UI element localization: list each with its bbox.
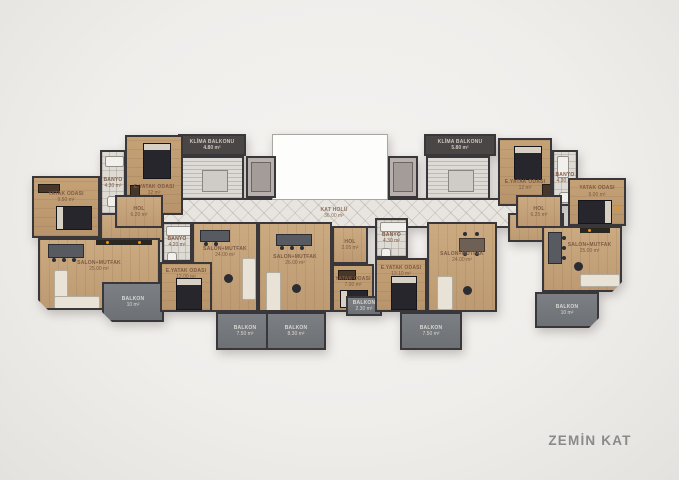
bed-icon [143,143,171,179]
room-klima-balkonu-left: KLİMA BALKONU4.80 m² [178,134,246,156]
floor-plan: KAT HOLÜ36.00 m² KLİMA BALKONU4.80 m² KL… [30,118,650,376]
room-label: BALKON [268,325,324,331]
balcony-left: BALKON10 m² [102,282,164,322]
coffee-table-icon [224,274,233,283]
room-hol-left: HOL6.20 m² [115,195,163,228]
stool-icon [62,258,66,262]
room-label: BALKON [402,325,460,331]
accent-icon [588,229,591,232]
room-label: BANYO [164,236,190,242]
balcony-unit4: BALKON7.50 m² [400,312,462,350]
bed-icon [176,278,202,310]
balcony-center: BALKON8.30 m² [266,312,326,350]
bed-icon [578,200,612,224]
room-label: KLİMA BALKONU [426,139,494,145]
room-label: BALKON [537,304,597,310]
room-label: HOL [334,239,366,245]
room-label: HOL [518,205,560,211]
room-eyatak-unit2: E.YATAK ODASI12.00 m² [160,262,212,312]
room-area: 2.05 m² [334,245,366,251]
stool-icon [290,246,294,250]
room-label: KAT HOLÜ [152,207,516,213]
stool-icon [72,258,76,262]
room-area: 4.20 m² [164,242,190,248]
room-salon-right: SALON+MUTFAK25.00 m² [542,226,622,292]
stool-icon [300,246,304,250]
room-salon-center: SALON+MUTFAK26.00 m² [258,222,332,312]
room-yatak-right: YATAK ODASI9.00 m² [568,178,626,226]
room-label: SALON+MUTFAK [559,242,620,248]
room-hol-center: HOL2.05 m² [332,226,368,264]
chair-icon [463,232,467,236]
stairwell-left [180,156,244,200]
room-label: YATAK ODASI [570,185,624,191]
stool-icon [562,256,566,260]
bathtub-icon [557,156,569,178]
kitchen-island-icon [48,244,84,258]
toilet-icon [167,252,177,262]
room-area: 6.25 m² [518,212,560,218]
room-area: 10 m² [537,310,597,316]
bed-icon [56,206,92,230]
stool-icon [204,242,208,246]
room-area: 4.80 m² [180,145,244,151]
chair-icon [475,252,479,256]
coffee-table-icon [463,286,472,295]
room-label: E.YATAK ODASI [162,268,210,274]
room-area: 9.00 m² [570,191,624,197]
room-area: 4.30 m² [102,183,124,189]
room-label: SALON+MUTFAK [194,245,256,251]
room-area: 24.00 m² [194,252,256,258]
bathtub-icon [380,222,408,232]
room-area: 4.30 m² [377,238,406,244]
room-banyo-unit2: BANYO4.20 m² [162,222,192,262]
room-hol-right: HOL6.25 m² [516,195,562,228]
chair-icon [463,252,467,256]
stair-landing-icon [448,170,474,192]
sofa-icon [580,274,620,287]
room-label: SALON+MUTFAK [40,260,158,266]
room-salon-unit4: SALON+MUTFAK24.00 m² [427,222,497,312]
stool-icon [562,246,566,250]
coffee-table-icon [574,262,583,271]
sofa-icon [266,272,281,312]
room-label: HOL [117,205,161,211]
coffee-table-icon [292,284,301,293]
elevator-right [388,156,418,198]
kitchen-island-icon [276,234,312,246]
elevator-car-icon [393,162,413,192]
elevator-left [246,156,276,198]
room-area: 9.50 m² [34,197,98,203]
tv-sideboard-icon [96,240,152,245]
kitchen-island-icon [548,232,562,264]
room-label: BALKON [104,296,162,302]
accent-icon [106,241,109,244]
bathtub-icon [105,156,124,167]
stool-icon [562,236,566,240]
kitchen-island-icon [200,230,230,242]
room-area: 36.00 m² [152,213,516,219]
room-label: KLİMA BALKONU [180,139,244,145]
stairwell-right [426,156,490,200]
bed-icon [514,146,542,180]
balcony-right: BALKON10 m² [535,292,599,328]
room-area: 8.30 m² [268,331,324,337]
room-klima-balkonu-right: KLİMA BALKONU5.80 m² [424,134,496,156]
toilet-icon [381,248,391,258]
room-label: BALKON [218,325,272,331]
sofa-icon [242,258,256,300]
stool-icon [52,258,56,262]
room-label: SALON+MUTFAK [260,254,330,260]
sofa-icon [437,276,453,310]
bathtub-icon [166,226,192,236]
room-area: 7.00 m² [334,282,372,288]
room-label: BANYO [102,176,124,182]
room-banyo-unit4: BANYO4.30 m² [375,218,408,258]
room-label: E.YATAK ODASI [377,265,425,271]
bed-icon [391,276,417,310]
tv-sideboard-icon [580,228,610,233]
wardrobe-icon [38,184,60,193]
dining-table-icon [459,238,485,252]
stair-landing-icon [202,170,228,192]
room-area: 7.50 m² [218,331,272,337]
accent-icon [616,206,620,210]
chair-icon [475,232,479,236]
sofa-icon [54,296,100,309]
room-area: 10 m² [104,302,162,308]
room-area: 7.50 m² [402,331,460,337]
room-area: 5.80 m² [426,145,494,151]
entrance-void [272,134,388,200]
elevator-car-icon [251,162,271,192]
room-eyatak-unit4: E.YATAK ODASI13.10 m² [375,258,427,312]
room-area: 25.00 m² [559,248,620,254]
room-area: 6.20 m² [117,212,161,218]
wardrobe-icon [338,270,356,280]
floor-title: ZEMİN KAT [540,433,640,448]
room-yatak-odasi-left: YATAK ODASI9.50 m² [32,176,100,238]
floor-plan-page: KAT HOLÜ36.00 m² KLİMA BALKONU4.80 m² KL… [0,0,679,480]
room-label: BANYO [377,232,406,238]
stool-icon [280,246,284,250]
room-area: 24.00 m² [429,257,495,263]
accent-icon [138,241,141,244]
stool-icon [214,242,218,246]
room-area: 26.00 m² [260,260,330,266]
